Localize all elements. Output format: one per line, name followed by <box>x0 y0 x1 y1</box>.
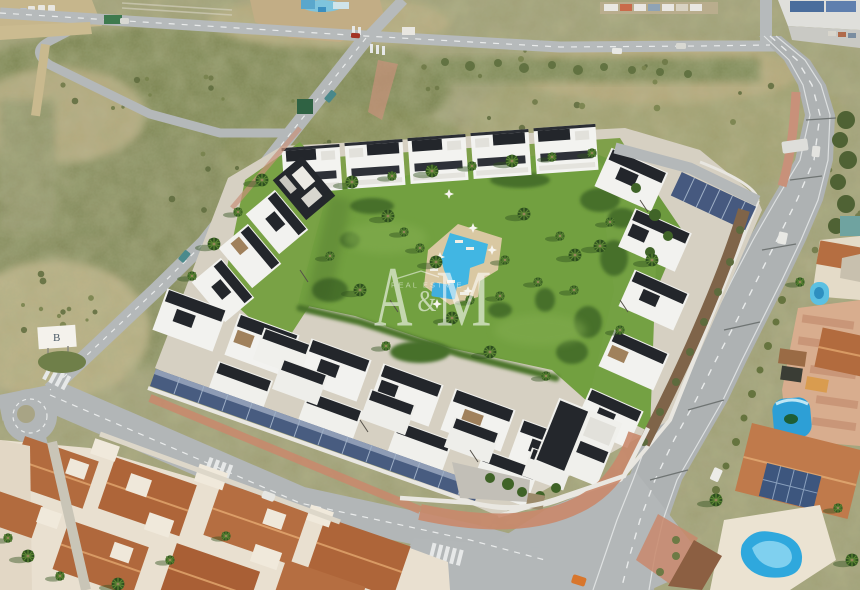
svg-text:M: M <box>436 254 491 343</box>
svg-text:A: A <box>374 250 413 345</box>
svg-text:B: B <box>53 332 60 344</box>
svg-text:REAL ESTATE: REAL ESTATE <box>391 281 464 290</box>
